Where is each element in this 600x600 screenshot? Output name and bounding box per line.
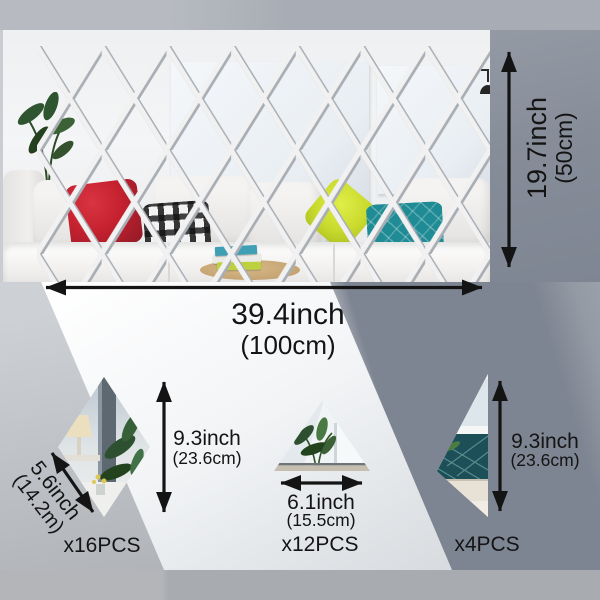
main-width-sublabel: (100cm) xyxy=(240,332,335,358)
half-diamond-height-label: 9.3inch xyxy=(511,431,579,452)
triangle-count-label: x12PCS xyxy=(281,534,358,555)
main-height-sublabel: (50cm) xyxy=(552,97,576,199)
rhombus-height-sublabel: (23.6cm) xyxy=(172,450,241,468)
diamond-lattice-pattern xyxy=(37,46,490,282)
main-height-label: 19.7inch xyxy=(522,97,552,199)
triangle-width-sublabel: (15.5cm) xyxy=(286,512,355,530)
rhombus-count-label: x16PCS xyxy=(63,535,140,556)
rhombus-height-label: 9.3inch xyxy=(173,428,241,449)
main-width-label: 39.4inch xyxy=(231,300,344,330)
half-diamond-height-sublabel: (23.6cm) xyxy=(510,452,579,470)
bottom-gray-strip xyxy=(0,570,600,600)
main-mirror-photo xyxy=(3,30,490,282)
half-diamond-count-label: x4PCS xyxy=(454,534,519,555)
product-dimension-diagram: 39.4inch (100cm) 19.7inch (50cm) 9.3inch… xyxy=(0,0,600,600)
top-gray-band xyxy=(0,0,600,30)
